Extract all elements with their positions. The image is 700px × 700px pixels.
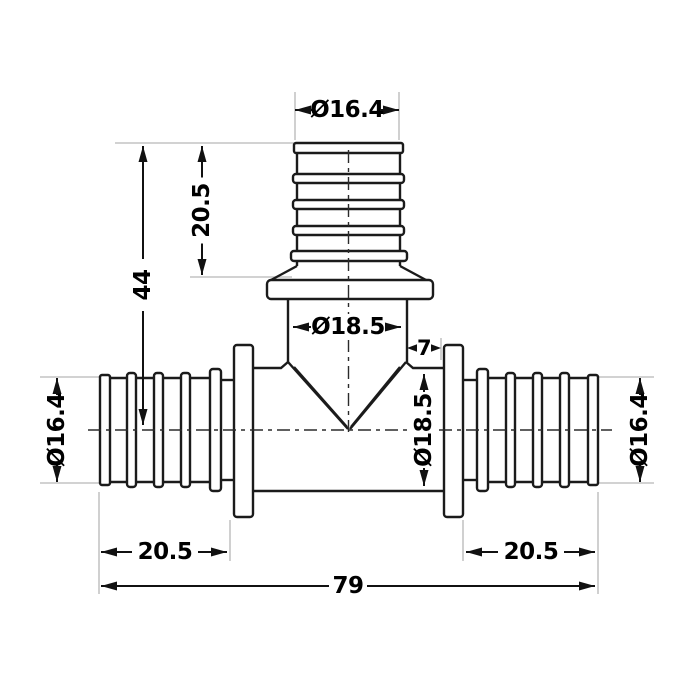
- drawing-canvas: Ø16.4 20.5 44 Ø18.5 7: [0, 0, 700, 700]
- tee-fitting-drawing: Ø16.4 20.5 44 Ø18.5 7: [0, 0, 700, 700]
- dim-right-barb-label: 20.5: [504, 539, 559, 565]
- extension-lines: [40, 92, 654, 594]
- dim-left-od: Ø16.4: [44, 378, 70, 482]
- dim-branch-id-label: Ø18.5: [311, 314, 385, 340]
- dim-offset-label: 7: [417, 336, 431, 360]
- dim-body-id-label: Ø18.5: [411, 393, 437, 467]
- left-flange: [234, 345, 253, 517]
- dim-overall: 79: [101, 573, 595, 599]
- branch-flange: [267, 280, 433, 299]
- dim-branch-height-label: 44: [130, 269, 156, 300]
- right-port: [444, 345, 598, 517]
- chamfer-line: [351, 367, 400, 427]
- dim-right-od: Ø16.4: [627, 378, 653, 482]
- dim-left-barb: 20.5: [101, 539, 227, 565]
- left-port: [100, 345, 253, 517]
- branch-port: [267, 143, 433, 429]
- dim-right-barb: 20.5: [466, 539, 595, 565]
- dim-overall-label: 79: [332, 573, 363, 599]
- dim-left-barb-label: 20.5: [138, 539, 193, 565]
- dim-offset: 7: [407, 336, 441, 360]
- dim-branch-barb: 20.5: [189, 146, 215, 275]
- dim-branch-od-label: Ø16.4: [310, 97, 384, 123]
- dim-body-id: Ø18.5: [411, 374, 437, 486]
- right-flange: [444, 345, 463, 517]
- dim-left-od-label: Ø16.4: [44, 393, 70, 467]
- dim-branch-id: Ø18.5: [293, 314, 401, 340]
- dim-branch-od: Ø16.4: [295, 97, 399, 123]
- chamfer-line: [294, 367, 347, 427]
- dim-right-od-label: Ø16.4: [627, 393, 653, 467]
- dim-branch-barb-label: 20.5: [189, 183, 215, 238]
